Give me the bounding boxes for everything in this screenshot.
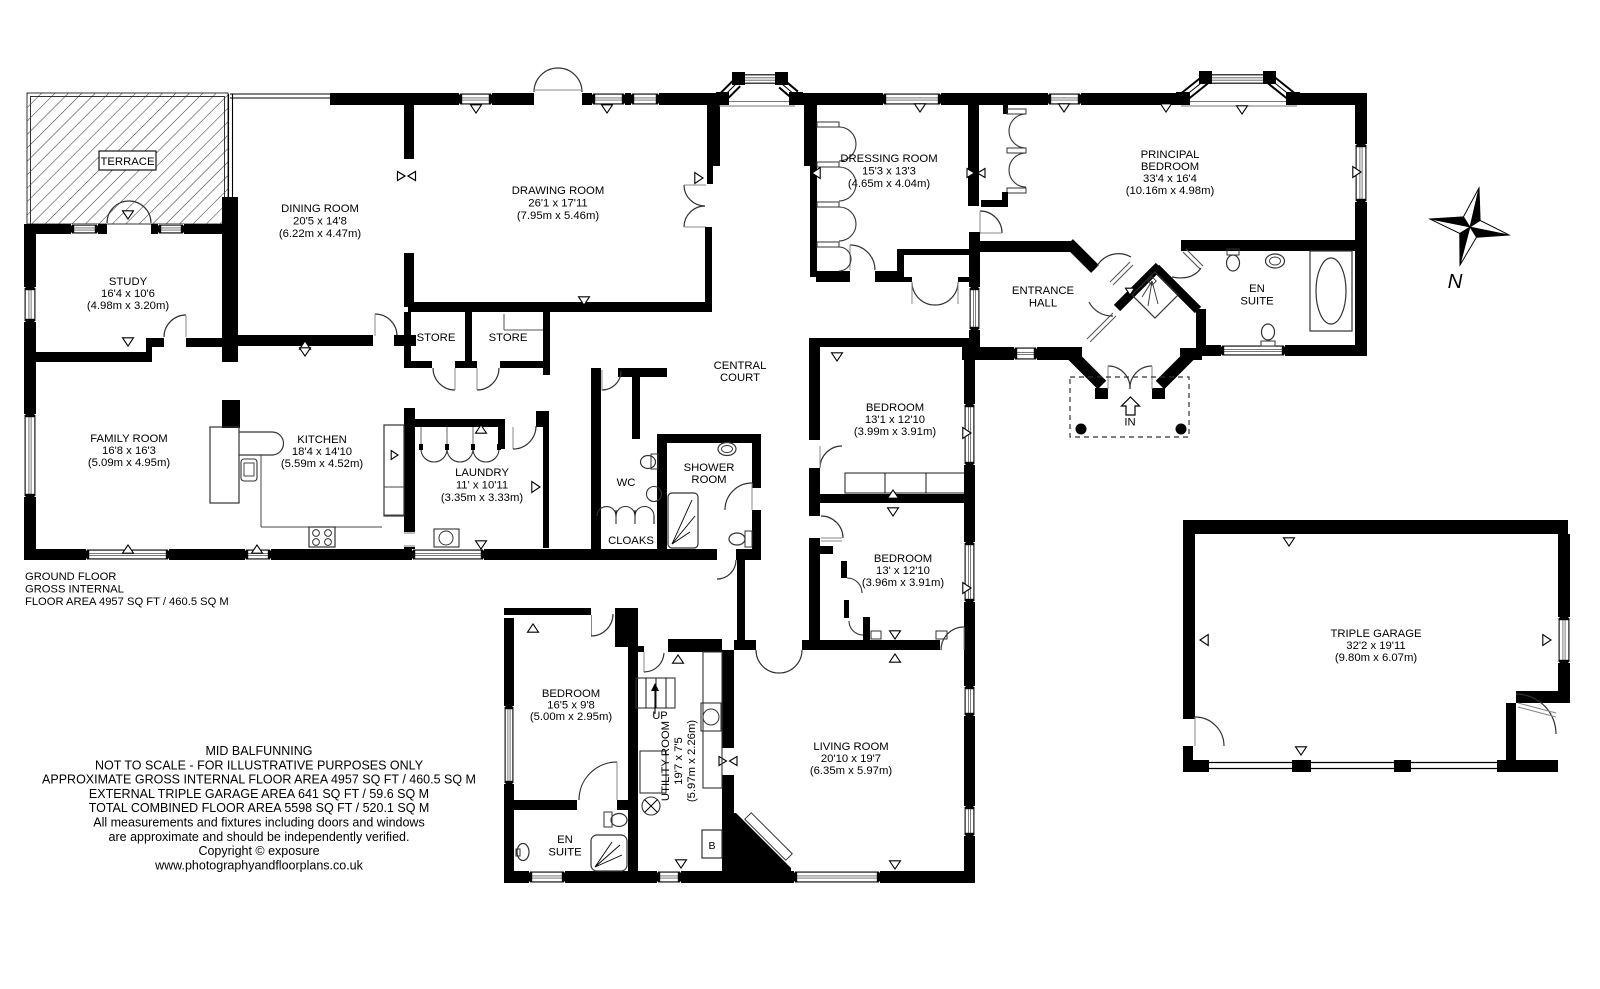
svg-text:(7.95m x 5.46m): (7.95m x 5.46m) xyxy=(517,210,599,222)
svg-text:26'1 x 17'11: 26'1 x 17'11 xyxy=(528,198,587,210)
svg-text:LAUNDRY: LAUNDRY xyxy=(455,467,509,479)
svg-text:SUITE: SUITE xyxy=(548,847,582,859)
svg-text:16'5 x 9'8: 16'5 x 9'8 xyxy=(547,700,595,712)
svg-text:STORE: STORE xyxy=(417,332,456,344)
svg-text:EN: EN xyxy=(557,834,573,846)
svg-text:CLOAKS: CLOAKS xyxy=(608,535,654,547)
svg-text:PRINCIPAL: PRINCIPAL xyxy=(1141,149,1200,161)
svg-text:SHOWER: SHOWER xyxy=(684,462,735,474)
svg-text:(3.96m x 3.91m): (3.96m x 3.91m) xyxy=(862,577,944,589)
svg-text:20'10 x 19'7: 20'10 x 19'7 xyxy=(821,753,881,765)
svg-text:UP: UP xyxy=(652,710,667,722)
svg-text:15'3 x 13'3: 15'3 x 13'3 xyxy=(862,166,916,178)
svg-text:(3.35m x 3.33m): (3.35m x 3.33m) xyxy=(441,492,523,504)
svg-text:GROUND FLOOR: GROUND FLOOR xyxy=(25,571,116,583)
svg-text:(5.09m x 4.95m): (5.09m x 4.95m) xyxy=(88,457,170,469)
svg-text:20'5 x 14'8: 20'5 x 14'8 xyxy=(293,216,347,228)
svg-text:DRAWING ROOM: DRAWING ROOM xyxy=(512,185,604,197)
svg-text:NOT TO SCALE - FOR ILLUSTRATIV: NOT TO SCALE - FOR ILLUSTRATIVE PURPOSES… xyxy=(95,758,424,772)
svg-text:GROSS INTERNAL: GROSS INTERNAL xyxy=(25,584,124,596)
svg-text:KITCHEN: KITCHEN xyxy=(297,434,347,446)
svg-text:ROOM: ROOM xyxy=(691,474,726,486)
svg-text:13'1 x 12'10: 13'1 x 12'10 xyxy=(865,414,925,426)
svg-text:TRIPLE GARAGE: TRIPLE GARAGE xyxy=(1330,628,1421,640)
svg-text:(5.00m x 2.95m): (5.00m x 2.95m) xyxy=(530,711,612,723)
svg-text:www.photographyandfloorplans.c: www.photographyandfloorplans.co.uk xyxy=(154,858,364,872)
svg-text:ENTRANCE: ENTRANCE xyxy=(1012,285,1075,297)
svg-text:13' x 12'10: 13' x 12'10 xyxy=(876,565,930,577)
svg-text:19'7 x 7'5: 19'7 x 7'5 xyxy=(673,737,685,785)
svg-text:HALL: HALL xyxy=(1029,298,1057,310)
svg-text:33'4 x 16'4: 33'4 x 16'4 xyxy=(1143,173,1197,185)
svg-text:16'8 x 16'3: 16'8 x 16'3 xyxy=(102,445,156,457)
svg-text:(4.98m x 3.20m): (4.98m x 3.20m) xyxy=(87,300,169,312)
svg-text:(9.80m x 6.07m): (9.80m x 6.07m) xyxy=(1335,652,1417,664)
svg-text:DRESSING ROOM: DRESSING ROOM xyxy=(840,153,937,165)
svg-text:MID BALFUNNING: MID BALFUNNING xyxy=(206,744,313,758)
svg-text:BEDROOM: BEDROOM xyxy=(866,402,924,414)
svg-text:APPROXIMATE GROSS INTERNAL FLO: APPROXIMATE GROSS INTERNAL FLOOR AREA 49… xyxy=(42,773,476,787)
svg-text:(10.16m x 4.98m): (10.16m x 4.98m) xyxy=(1126,185,1215,197)
svg-text:N: N xyxy=(1448,270,1463,293)
svg-text:(5.59m x 4.52m): (5.59m x 4.52m) xyxy=(281,458,363,470)
svg-text:TOTAL COMBINED FLOOR AREA 5598: TOTAL COMBINED FLOOR AREA 5598 SQ FT / 5… xyxy=(89,801,430,815)
svg-text:TERRACE: TERRACE xyxy=(101,156,155,168)
svg-text:(3.99m x 3.91m): (3.99m x 3.91m) xyxy=(854,426,936,438)
svg-text:STUDY: STUDY xyxy=(109,276,148,288)
svg-text:(6.35m x 5.97m): (6.35m x 5.97m) xyxy=(810,765,892,777)
svg-text:STORE: STORE xyxy=(489,332,528,344)
svg-text:CENTRAL: CENTRAL xyxy=(714,360,767,372)
svg-text:B: B xyxy=(708,840,715,852)
svg-text:FLOOR AREA 4957 SQ FT / 460.5: FLOOR AREA 4957 SQ FT / 460.5 SQ M xyxy=(25,596,229,608)
svg-text:IN: IN xyxy=(1124,417,1135,429)
svg-text:(4.65m x 4.04m): (4.65m x 4.04m) xyxy=(848,178,930,190)
svg-text:COURT: COURT xyxy=(720,372,760,384)
svg-text:(6.22m x 4.47m): (6.22m x 4.47m) xyxy=(279,228,361,240)
svg-text:LIVING ROOM: LIVING ROOM xyxy=(813,741,888,753)
svg-text:Copyright © exposure: Copyright © exposure xyxy=(198,844,319,858)
svg-text:DINING ROOM: DINING ROOM xyxy=(281,203,359,215)
svg-text:BEDROOM: BEDROOM xyxy=(542,688,600,700)
svg-text:All measurements and fixtures: All measurements and fixtures including … xyxy=(93,816,424,830)
svg-text:11' x 10'11: 11' x 10'11 xyxy=(456,480,508,492)
svg-text:FAMILY ROOM: FAMILY ROOM xyxy=(90,433,167,445)
svg-text:32'2 x 19'11: 32'2 x 19'11 xyxy=(1346,640,1405,652)
svg-text:16'4 x 10'6: 16'4 x 10'6 xyxy=(101,288,155,300)
svg-text:EXTERNAL TRIPLE GARAGE AREA 64: EXTERNAL TRIPLE GARAGE AREA 641 SQ FT / … xyxy=(89,787,429,801)
svg-text:SUITE: SUITE xyxy=(1240,296,1274,308)
svg-text:18'4 x 14'10: 18'4 x 14'10 xyxy=(292,446,352,458)
svg-text:BEDROOM: BEDROOM xyxy=(874,553,932,565)
svg-text:are approximate and should be: are approximate and should be independen… xyxy=(109,830,410,844)
svg-text:WC: WC xyxy=(617,477,636,489)
svg-text:EN: EN xyxy=(1249,283,1265,295)
svg-text:UTILITY ROOM: UTILITY ROOM xyxy=(660,721,672,801)
svg-text:(5.97m x 2.26m): (5.97m x 2.26m) xyxy=(686,720,698,802)
svg-text:BEDROOM: BEDROOM xyxy=(1141,161,1199,173)
